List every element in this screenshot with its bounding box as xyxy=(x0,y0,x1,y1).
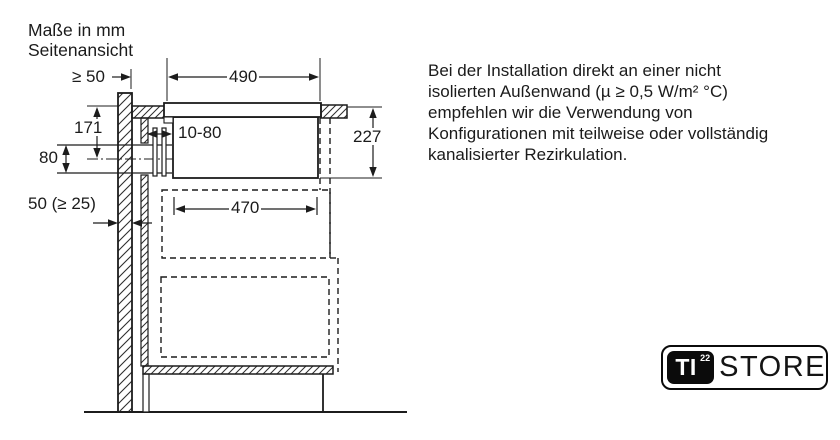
wall-section xyxy=(118,93,132,412)
ti22-store-logo: TI 22 STORE xyxy=(661,345,828,390)
dim-label-wall-thickness: 50 (≥ 25) xyxy=(26,195,98,212)
dim-label-hob-width: 490 xyxy=(227,68,259,85)
installation-note: Bei der Installation direkt an einer nic… xyxy=(428,60,768,165)
ti22-logo-badge: TI 22 xyxy=(667,351,714,384)
logo-store-text: STORE xyxy=(719,351,826,384)
drawing-title-view: Seitenansicht xyxy=(28,42,133,60)
drawing-title-units: Maße in mm xyxy=(28,22,125,40)
back-panel-lower xyxy=(141,175,148,366)
dim-label-rear-gap: 10-80 xyxy=(176,124,223,141)
installation-drawing-page: Maße in mm Seitenansicht ≥ 50 490 171 80… xyxy=(0,0,840,440)
note-line: Konfigurationen mit teilweise oder volls… xyxy=(428,123,768,144)
plinth-shelf xyxy=(143,366,333,374)
note-line: isolierten Außenwand (µ ≥ 0,5 W/m² °C) xyxy=(428,81,768,102)
hob-glass xyxy=(164,103,321,117)
worktop-left xyxy=(132,106,165,118)
dim-label-duct-opening-height: 80 xyxy=(37,149,60,166)
dim-label-wall-distance: ≥ 50 xyxy=(70,68,107,85)
dim-label-unit-lower-width: 470 xyxy=(229,199,261,216)
worktop-right xyxy=(321,105,347,118)
note-line: kanalisierter Rezirkulation. xyxy=(428,144,768,165)
dim-label-worktop-to-duct-center: 171 xyxy=(72,119,104,136)
note-line: Bei der Installation direkt an einer nic… xyxy=(428,60,768,81)
logo-superscript: 22 xyxy=(700,353,710,363)
note-line: empfehlen wir die Verwendung von xyxy=(428,102,768,123)
back-panel-upper xyxy=(141,118,148,143)
dim-label-unit-height: 227 xyxy=(351,128,383,145)
logo-prefix: TI xyxy=(675,354,696,381)
cabinet-leg-left xyxy=(143,374,149,412)
